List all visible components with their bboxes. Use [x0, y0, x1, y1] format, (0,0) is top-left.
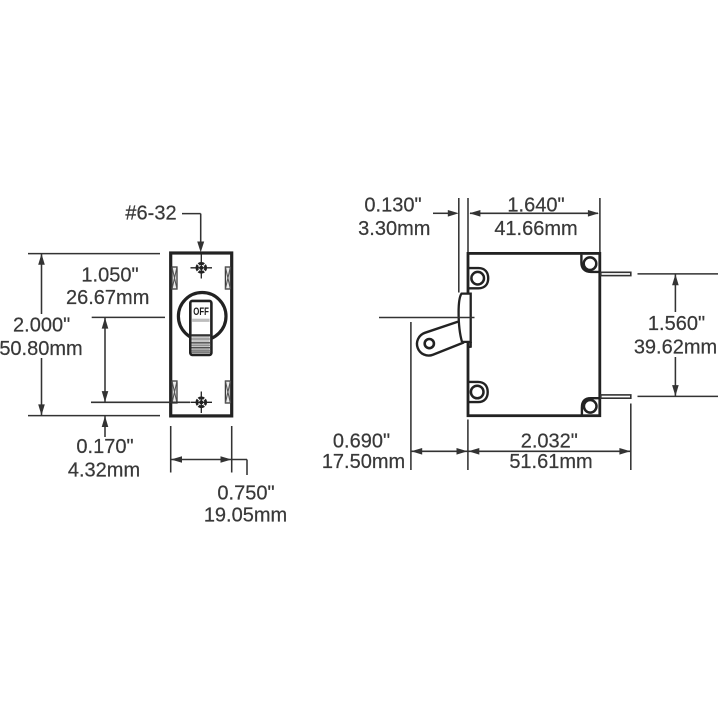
- svg-text:3.30mm: 3.30mm: [358, 218, 430, 240]
- svg-text:50.80mm: 50.80mm: [0, 338, 83, 360]
- svg-text:19.05mm: 19.05mm: [204, 505, 287, 527]
- svg-text:0.130": 0.130": [364, 195, 421, 217]
- svg-text:1.050": 1.050": [81, 265, 138, 287]
- svg-text:0.690": 0.690": [333, 431, 390, 453]
- svg-text:17.50mm: 17.50mm: [322, 451, 405, 473]
- svg-text:51.61mm: 51.61mm: [509, 451, 592, 473]
- svg-text:0.170": 0.170": [76, 436, 133, 458]
- svg-text:39.62mm: 39.62mm: [634, 337, 717, 359]
- svg-text:OFF: OFF: [193, 306, 209, 318]
- svg-text:#6-32: #6-32: [125, 203, 176, 225]
- svg-text:4.32mm: 4.32mm: [68, 460, 140, 482]
- svg-text:26.67mm: 26.67mm: [66, 287, 149, 309]
- svg-text:2.000": 2.000": [13, 315, 70, 337]
- svg-text:2.032": 2.032": [521, 431, 578, 453]
- svg-text:1.640": 1.640": [507, 195, 564, 217]
- svg-text:0.750": 0.750": [217, 483, 274, 505]
- svg-text:1.560": 1.560": [648, 313, 705, 335]
- svg-text:41.66mm: 41.66mm: [494, 218, 577, 240]
